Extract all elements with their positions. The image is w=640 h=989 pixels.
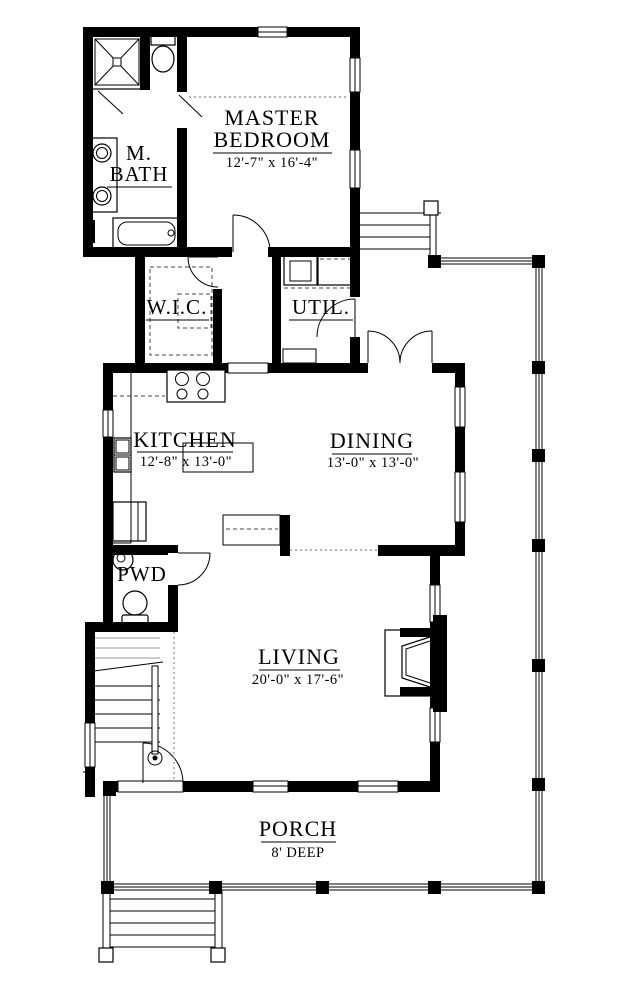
hall-kitchen-opening [228, 363, 268, 373]
window [455, 472, 465, 522]
window [350, 150, 360, 188]
wic-name: W.I.C. [147, 295, 208, 319]
window [103, 410, 113, 437]
window [253, 781, 288, 792]
living-dims: 20'-0" x 17'-6" [252, 672, 344, 688]
floor-plan: MASTER BEDROOM 12'-7" x 16'-4" M. BATH W… [0, 0, 640, 989]
window [455, 387, 465, 427]
living-label: LIVING 20'-0" x 17'-6" [252, 644, 344, 688]
porch-depth: 8' DEEP [271, 845, 324, 861]
window [258, 27, 287, 37]
master-bath-name-2: BATH [110, 162, 169, 186]
step-newel [99, 948, 113, 962]
window [85, 723, 95, 767]
kitchen-label: KITCHEN 12'-8" x 13'-0" [133, 427, 237, 470]
floor-plan-page: MASTER BEDROOM 12'-7" x 16'-4" M. BATH W… [0, 0, 640, 989]
wic-label: W.I.C. [146, 295, 209, 320]
utility-name: UTIL. [292, 295, 350, 319]
kitchen-name: KITCHEN [133, 427, 237, 452]
powder-label: PWD [117, 562, 167, 586]
step-newel [211, 948, 225, 962]
living-name: LIVING [258, 644, 340, 669]
front-door-opening [118, 781, 183, 792]
kitchen-dims: 12'-8" x 13'-0" [140, 454, 232, 470]
porch-name: PORCH [259, 816, 337, 841]
range [167, 370, 225, 402]
window [358, 781, 398, 792]
window [430, 708, 440, 742]
powder-name: PWD [117, 562, 167, 586]
dining-label: DINING 13'-0" x 13'-0" [327, 428, 419, 471]
step-newel [424, 201, 438, 215]
dining-name: DINING [330, 428, 414, 453]
dining-dims: 13'-0" x 13'-0" [327, 455, 419, 471]
master-bedroom-dims: 12'-7" x 16'-4" [226, 155, 318, 171]
window [350, 58, 360, 92]
master-bedroom-name-2: BEDROOM [213, 127, 330, 152]
master-bedroom-label: MASTER BEDROOM 12'-7" x 16'-4" [213, 105, 332, 171]
utility-label: UTIL. [289, 295, 353, 320]
